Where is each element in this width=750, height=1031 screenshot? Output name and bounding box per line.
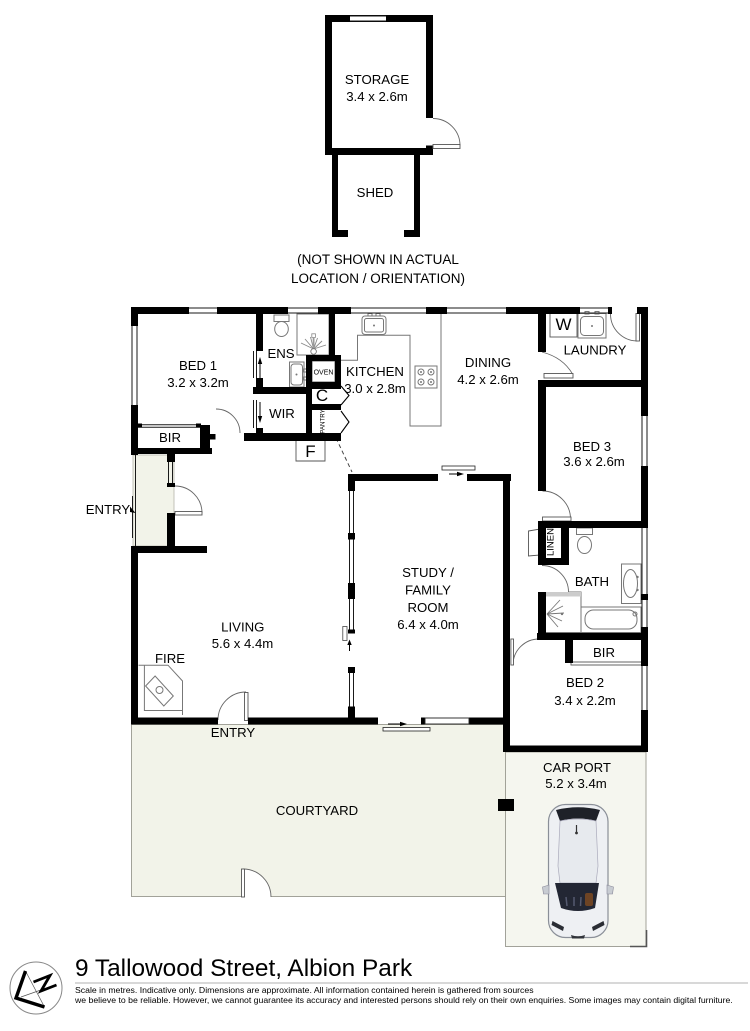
svg-text:5.6 x 4.4m: 5.6 x 4.4m <box>212 636 274 651</box>
svg-text:ENS: ENS <box>267 346 294 361</box>
svg-text:COURTYARD: COURTYARD <box>276 803 358 818</box>
svg-text:3.4 x 2.2m: 3.4 x 2.2m <box>554 693 616 708</box>
svg-text:ENTRY: ENTRY <box>86 502 131 517</box>
svg-text:OVEN: OVEN <box>314 370 334 377</box>
svg-text:STUDY /: STUDY / <box>402 565 454 580</box>
svg-text:BATH: BATH <box>575 574 609 589</box>
svg-text:WIR: WIR <box>269 406 295 421</box>
svg-text:3.0 x 2.8m: 3.0 x 2.8m <box>344 381 406 396</box>
svg-text:3.6 x 2.6m: 3.6 x 2.6m <box>563 454 625 469</box>
svg-text:LIVING: LIVING <box>221 620 264 635</box>
svg-text:(NOT SHOWN IN ACTUAL: (NOT SHOWN IN ACTUAL <box>297 252 459 267</box>
svg-text:LOCATION / ORIENTATION): LOCATION / ORIENTATION) <box>291 271 465 286</box>
svg-text:STORAGE: STORAGE <box>345 72 409 87</box>
svg-text:W: W <box>555 315 571 334</box>
svg-text:F: F <box>305 442 315 461</box>
svg-text:SHED: SHED <box>357 185 394 200</box>
svg-text:3.4 x 2.6m: 3.4 x 2.6m <box>346 89 408 104</box>
svg-text:PANTRY: PANTRY <box>320 409 327 434</box>
svg-text:3.2 x 3.2m: 3.2 x 3.2m <box>167 375 229 390</box>
svg-text:KITCHEN: KITCHEN <box>346 364 404 379</box>
svg-text:ENTRY: ENTRY <box>211 725 256 740</box>
svg-text:FAMILY: FAMILY <box>405 583 451 598</box>
svg-text:C: C <box>316 386 328 405</box>
svg-text:BIR: BIR <box>593 645 615 660</box>
svg-text:Scale in metres. Indicative on: Scale in metres. Indicative only. Dimens… <box>75 985 534 995</box>
svg-text:BED 1: BED 1 <box>179 358 217 373</box>
svg-text:BED 2: BED 2 <box>566 675 604 690</box>
svg-text:LINEN: LINEN <box>546 528 557 556</box>
svg-text:DINING: DINING <box>465 355 511 370</box>
svg-text:4.2 x 2.6m: 4.2 x 2.6m <box>457 372 519 387</box>
svg-text:CAR PORT: CAR PORT <box>543 760 611 775</box>
svg-text:BED 3: BED 3 <box>573 439 611 454</box>
svg-text:FIRE: FIRE <box>155 651 185 666</box>
svg-text:6.4 x 4.0m: 6.4 x 4.0m <box>397 617 459 632</box>
svg-text:9 Tallowood Street, Albion Par: 9 Tallowood Street, Albion Park <box>75 955 413 982</box>
svg-text:we believe to be reliable. How: we believe to be reliable. However, we c… <box>74 995 733 1005</box>
svg-text:LAUNDRY: LAUNDRY <box>564 343 627 358</box>
svg-text:5.2 x 3.4m: 5.2 x 3.4m <box>545 776 607 791</box>
svg-text:ROOM: ROOM <box>407 600 448 615</box>
svg-text:BIR: BIR <box>159 430 181 445</box>
